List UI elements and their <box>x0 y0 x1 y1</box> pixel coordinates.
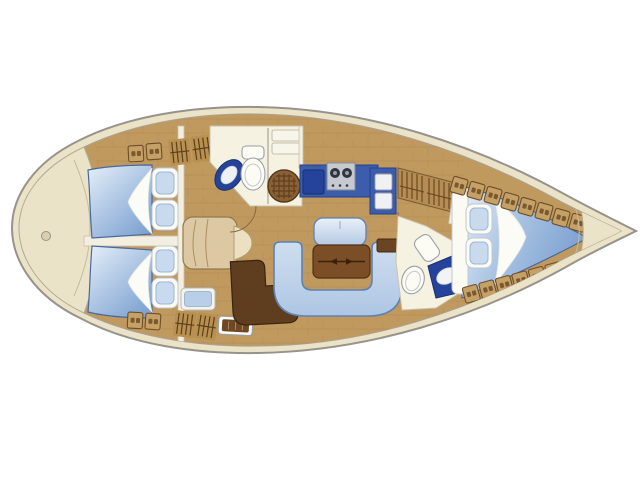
galley-fridge-bottom <box>375 193 392 209</box>
galley-sink <box>303 170 324 194</box>
berth-pillow <box>152 168 178 198</box>
side-locker <box>127 312 143 329</box>
blue-shelf <box>181 288 215 310</box>
stern-fitting <box>42 232 51 241</box>
galley-stove <box>327 163 355 190</box>
side-locker <box>145 313 161 330</box>
berth-pillow <box>466 204 492 234</box>
galley-bulkhead <box>299 126 303 168</box>
berth-pillow <box>466 238 492 268</box>
shower-shelf <box>272 130 300 141</box>
galley-fridge-top <box>375 174 392 190</box>
aft-toilet-cistern <box>242 146 264 159</box>
berth-pillow <box>152 278 178 308</box>
salon-table <box>313 245 370 278</box>
yacht-floorplan <box>0 0 640 480</box>
berth-pillow <box>152 200 178 230</box>
deck-hatch-grate <box>168 138 192 166</box>
side-locker <box>128 145 144 162</box>
interior <box>19 118 634 350</box>
berth-pillow <box>152 246 178 276</box>
deck-hatch-grate <box>173 310 197 338</box>
shower-shelf <box>272 143 300 154</box>
side-cabinet <box>377 239 398 252</box>
v-berth-headboard <box>452 190 468 294</box>
side-locker <box>146 143 162 160</box>
deck-hatch-grate <box>194 312 219 341</box>
yacht-floorplan-canvas <box>0 0 640 480</box>
